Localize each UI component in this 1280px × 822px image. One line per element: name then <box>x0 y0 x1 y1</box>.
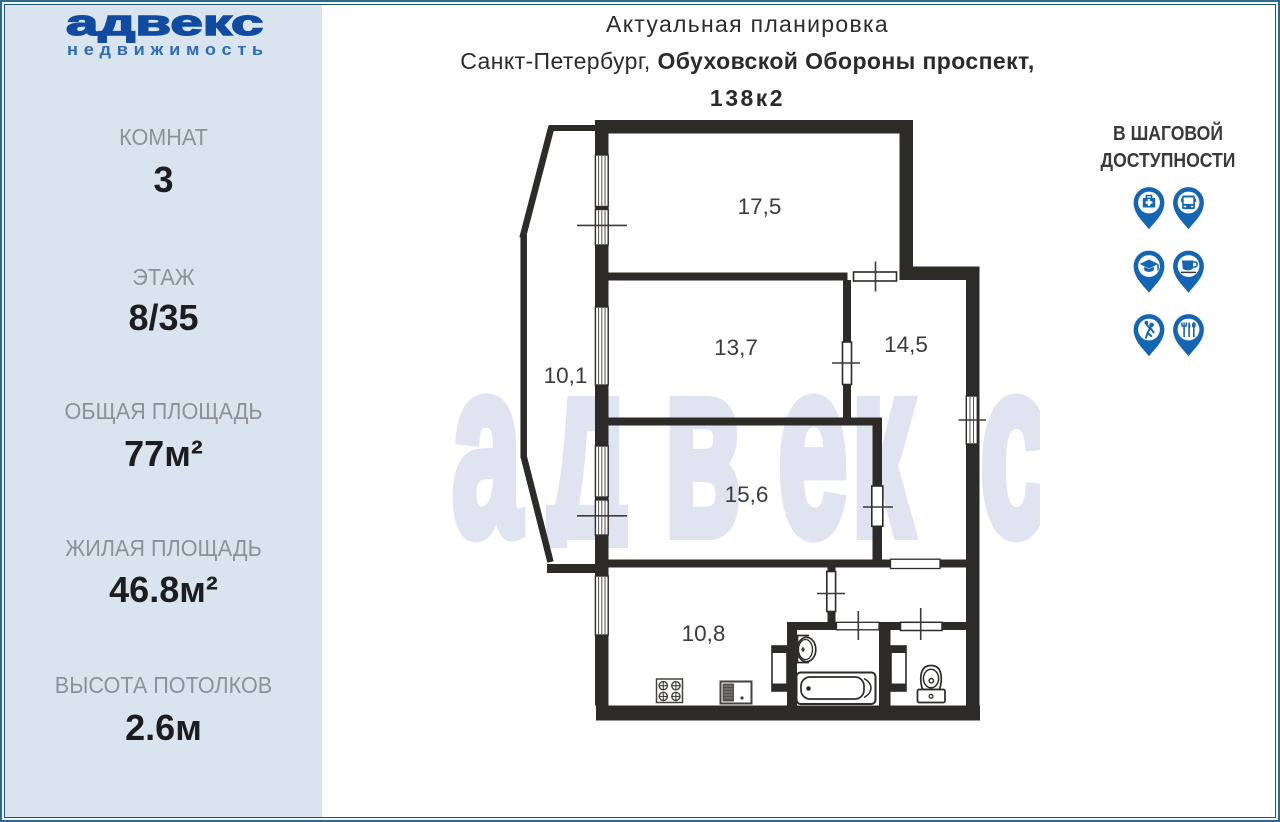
svg-text:13,7: 13,7 <box>714 335 758 360</box>
svg-text:15,6: 15,6 <box>725 482 769 507</box>
svg-text:14,5: 14,5 <box>884 332 928 357</box>
svg-text:10,8: 10,8 <box>682 621 726 646</box>
svg-text:17,5: 17,5 <box>738 194 782 219</box>
svg-text:10,1: 10,1 <box>544 363 588 388</box>
